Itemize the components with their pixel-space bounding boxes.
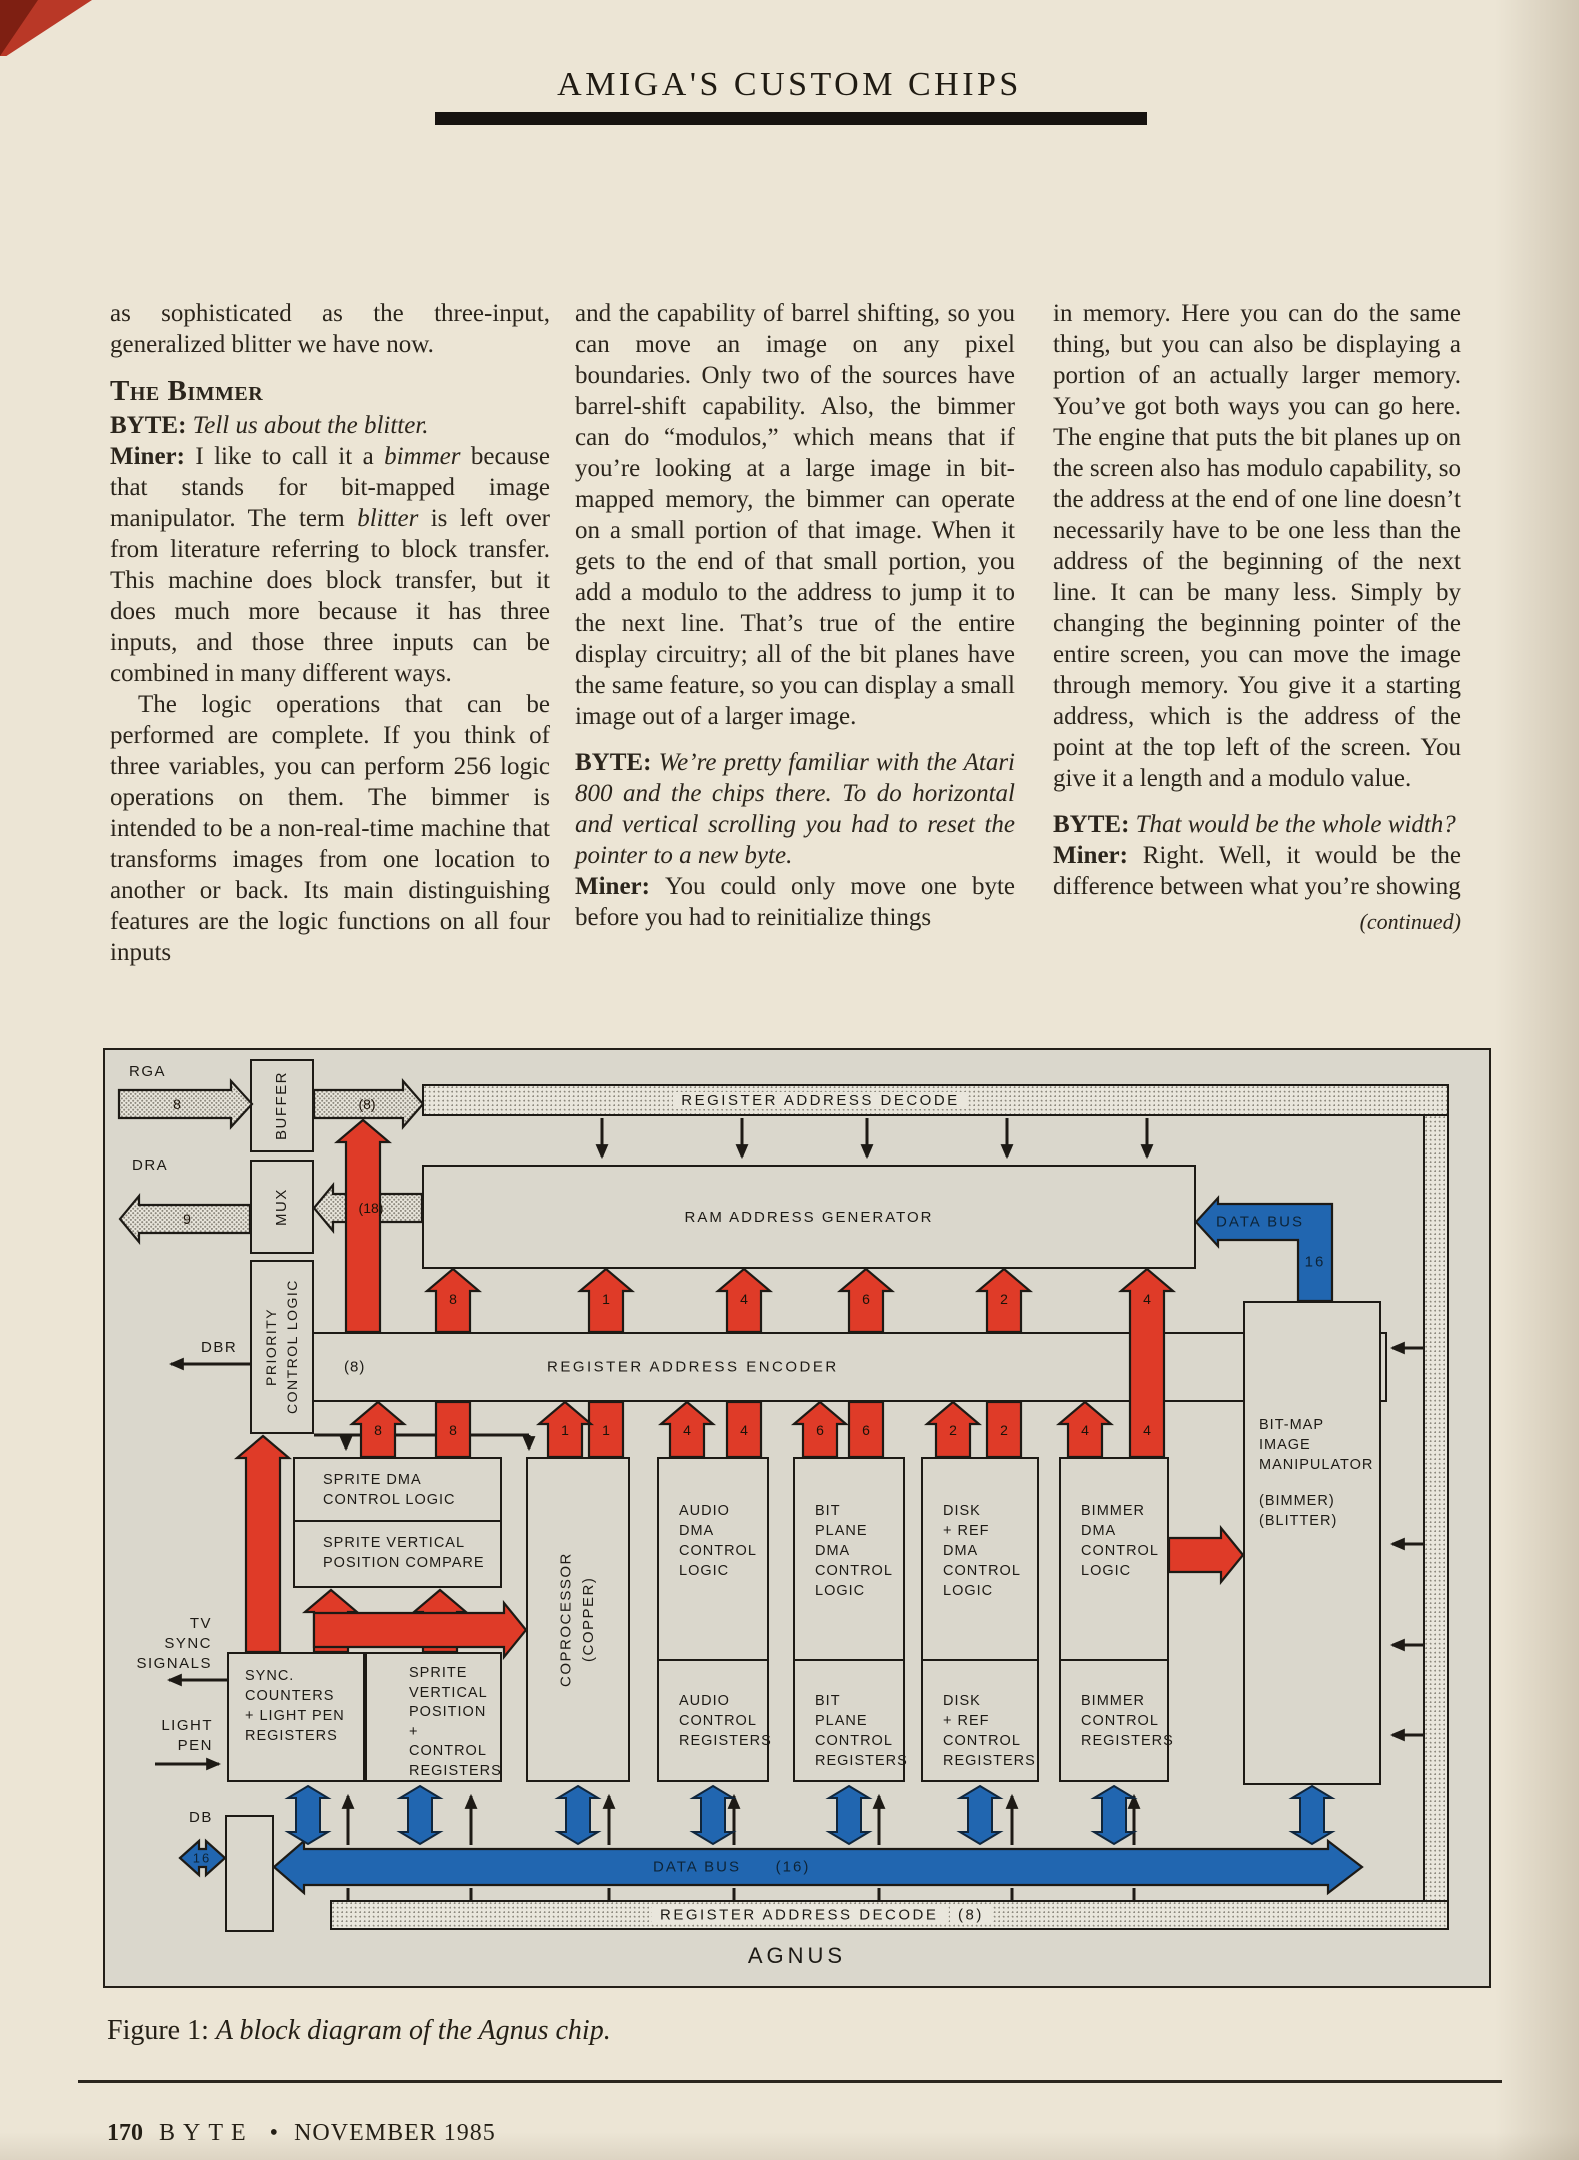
text-run: The Bimmer xyxy=(110,375,263,407)
text-run: Miner: xyxy=(110,443,195,470)
light-pen-label: LIGHT PEN xyxy=(129,1716,213,1756)
bus-width-number: 9 xyxy=(183,1211,191,1227)
bus-width-number: (16) xyxy=(776,1859,811,1876)
channel-width-number: 6 xyxy=(862,1422,870,1438)
channel-width-number: 4 xyxy=(683,1422,691,1438)
box-label: SPRITE VERTICAL POSITION + CONTROL REGIS… xyxy=(367,1654,500,1781)
bitmap-image-manipulator-box: BIT-MAP IMAGE MANIPULATOR (BIMMER) (BLIT… xyxy=(1243,1301,1381,1785)
text-run: as sophisticated as the three-input, gen… xyxy=(110,300,550,358)
bus-width-number: (18) xyxy=(359,1200,384,1216)
box-label: BUFFER xyxy=(252,1061,312,1150)
text-run: bimmer xyxy=(384,443,460,470)
sync-counters-box: SYNC. COUNTERS + LIGHT PEN REGISTERS xyxy=(227,1652,365,1782)
text-run: is left over from literature referring t… xyxy=(110,505,550,687)
text-run: blitter xyxy=(357,505,418,532)
article-paragraph: Miner: Right. Well, it would be the diff… xyxy=(1053,840,1461,902)
chip-name-label: AGNUS xyxy=(105,1943,1489,1969)
article-paragraph: BYTE: Tell us about the blitter. xyxy=(110,410,550,441)
bus-label: REGISTER ADDRESS DECODE xyxy=(673,1092,967,1109)
box-label: MUX xyxy=(252,1162,312,1252)
bit-plane-dma-box: BIT PLANE DMA CONTROL LOGIC BIT PLANE CO… xyxy=(793,1457,905,1782)
box-label: BIT-MAP IMAGE MANIPULATOR xyxy=(1245,1303,1379,1475)
channel-width-number: 6 xyxy=(816,1422,824,1438)
box-label: BIT PLANE CONTROL REGISTERS xyxy=(795,1661,903,1771)
box-label: PRIORITY CONTROL LOGIC xyxy=(252,1262,312,1432)
disk-ref-dma-box: DISK + REF DMA CONTROL LOGIC DISK + REF … xyxy=(921,1457,1039,1782)
text-column-3: in memory. Here you can do the same thin… xyxy=(1053,298,1461,937)
bus-width-number: 16 xyxy=(1305,1254,1326,1271)
buffer-box-bottom xyxy=(225,1815,274,1932)
box-label: BIMMER DMA CONTROL LOGIC xyxy=(1061,1459,1167,1581)
text-column-2: and the capability of barrel shifting, s… xyxy=(575,298,1015,933)
article-paragraph: in memory. Here you can do the same thin… xyxy=(1053,298,1461,794)
box-label: SPRITE DMA CONTROL LOGIC xyxy=(295,1470,456,1510)
register-address-encoder-box: (8) REGISTER ADDRESS ENCODER xyxy=(312,1332,1387,1402)
page-number: 170 xyxy=(107,2120,143,2147)
article-paragraph: as sophisticated as the three-input, gen… xyxy=(110,298,550,360)
channel-width-number: 4 xyxy=(1143,1291,1151,1307)
audio-dma-box: AUDIO DMA CONTROL LOGIC AUDIO CONTROL RE… xyxy=(657,1457,769,1782)
agnus-block-diagram: REGISTER ADDRESS DECODE REGISTER ADDRESS… xyxy=(103,1048,1491,1988)
register-address-decode-bus-top: REGISTER ADDRESS DECODE xyxy=(422,1084,1449,1116)
figure-caption-text: A block diagram of the Agnus chip. xyxy=(216,2015,611,2046)
text-run: The logic operations that can be perform… xyxy=(110,691,550,966)
channel-width-number: 1 xyxy=(561,1422,569,1438)
box-label: SPRITE VERTICAL POSITION COMPARE xyxy=(295,1533,485,1573)
box-label: AUDIO CONTROL REGISTERS xyxy=(659,1661,767,1751)
box-label: COPROCESSOR (COPPER) xyxy=(528,1459,628,1780)
channel-width-number: 2 xyxy=(1000,1291,1008,1307)
box-label xyxy=(227,1817,272,1930)
buffer-box-top: BUFFER xyxy=(250,1059,314,1152)
ram-address-generator-box: RAM ADDRESS GENERATOR xyxy=(422,1165,1196,1269)
article-paragraph: BYTE: We’re pretty familiar with the Ata… xyxy=(575,747,1015,871)
article-paragraph: Miner: I like to call it a bimmer becaus… xyxy=(110,441,550,689)
channel-width-number: 1 xyxy=(602,1291,610,1307)
bus-label: REGISTER ADDRESS DECODE xyxy=(652,1907,946,1924)
article-header-title: AMIGA'S CUSTOM CHIPS xyxy=(0,66,1579,104)
text-run: Miner: xyxy=(575,873,665,900)
bus-width-number: (8) xyxy=(358,1096,375,1112)
footer-rule xyxy=(78,2080,1502,2083)
bus-width-label: (8) xyxy=(950,1907,992,1924)
article-paragraph: BYTE: That would be the whole width? xyxy=(1053,809,1461,840)
issue-date: NOVEMBER 1985 xyxy=(294,2120,496,2147)
text-run: (continued) xyxy=(1360,909,1461,934)
box-label: REGISTER ADDRESS ENCODER xyxy=(547,1359,839,1376)
channel-width-number: 8 xyxy=(374,1422,382,1438)
box-label: BIMMER CONTROL REGISTERS xyxy=(1061,1661,1167,1751)
channel-width-number: 4 xyxy=(740,1291,748,1307)
mux-box: MUX xyxy=(250,1160,314,1254)
dra-signal-label: DRA xyxy=(132,1156,168,1176)
box-label: DISK + REF DMA CONTROL LOGIC xyxy=(923,1459,1037,1601)
magazine-page: AMIGA'S CUSTOM CHIPS as sophisticated as… xyxy=(0,0,1579,2160)
box-label: BIT PLANE DMA CONTROL LOGIC xyxy=(795,1459,903,1601)
rga-signal-label: RGA xyxy=(129,1062,166,1082)
channel-width-number: 6 xyxy=(862,1291,870,1307)
article-paragraph: and the capability of barrel shifting, s… xyxy=(575,298,1015,732)
box-label: DISK + REF CONTROL REGISTERS xyxy=(923,1661,1037,1771)
box-label: SYNC. COUNTERS + LIGHT PEN REGISTERS xyxy=(229,1654,363,1746)
priority-control-logic-box: PRIORITY CONTROL LOGIC xyxy=(250,1260,314,1434)
register-address-decode-bus-bottom: REGISTER ADDRESS DECODE (8) xyxy=(330,1900,1449,1930)
text-run: BYTE: xyxy=(1053,811,1136,838)
text-run: Miner: xyxy=(1053,842,1143,869)
bus-width-label: (8) xyxy=(344,1359,365,1376)
magazine-name: BYTE xyxy=(159,2120,254,2147)
dbr-signal-label: DBR xyxy=(201,1338,237,1358)
channel-width-number: 4 xyxy=(1081,1422,1089,1438)
db-signal-label: DB xyxy=(189,1808,213,1828)
figure-caption-label: Figure 1: xyxy=(107,2015,209,2046)
section-heading: The Bimmer xyxy=(110,375,550,407)
article-paragraph: Miner: You could only move one byte befo… xyxy=(575,871,1015,933)
footer-bullet: • xyxy=(270,2120,278,2147)
sprite-dma-box: SPRITE DMA CONTROL LOGIC SPRITE VERTICAL… xyxy=(293,1457,502,1588)
article-paragraph: The logic operations that can be perform… xyxy=(110,689,550,968)
channel-width-number: 2 xyxy=(1000,1422,1008,1438)
data-bus-label: DATA BUS xyxy=(1216,1214,1304,1231)
text-column-1: as sophisticated as the three-input, gen… xyxy=(110,298,550,968)
text-run: and the capability of barrel shifting, s… xyxy=(575,300,1015,730)
figure-caption: Figure 1: A block diagram of the Agnus c… xyxy=(107,2015,611,2047)
bus-width-number: 8 xyxy=(173,1096,181,1112)
text-run: in memory. Here you can do the same thin… xyxy=(1053,300,1461,792)
channel-width-number: 8 xyxy=(449,1422,457,1438)
text-run: That would be the whole width? xyxy=(1136,811,1456,838)
header-rule xyxy=(435,112,1147,125)
text-run: Tell us about the blitter. xyxy=(193,412,429,439)
article-paragraph: (continued) xyxy=(1053,906,1461,937)
coprocessor-copper-box: COPROCESSOR (COPPER) xyxy=(526,1457,630,1782)
channel-width-number: 4 xyxy=(1143,1422,1151,1438)
tv-sync-signals-label: TV SYNC SIGNALS xyxy=(110,1614,212,1674)
box-label: AUDIO DMA CONTROL LOGIC xyxy=(659,1459,767,1581)
channel-width-number: 1 xyxy=(602,1422,610,1438)
bus-width-number: 16 xyxy=(193,1851,211,1866)
page-footer: 170 BYTE • NOVEMBER 1985 xyxy=(107,2120,496,2147)
box-label: RAM ADDRESS GENERATOR xyxy=(424,1167,1194,1267)
page-edge-shadow xyxy=(1495,0,1579,2160)
channel-width-number: 4 xyxy=(740,1422,748,1438)
channel-width-number: 8 xyxy=(449,1291,457,1307)
bimmer-dma-box: BIMMER DMA CONTROL LOGIC BIMMER CONTROL … xyxy=(1059,1457,1169,1782)
text-run: BYTE: xyxy=(110,412,193,439)
box-label: (BIMMER) (BLITTER) xyxy=(1245,1475,1379,1531)
data-bus-label: DATA BUS xyxy=(653,1859,741,1876)
text-run: BYTE: xyxy=(575,749,659,776)
sprite-vertical-registers-box: SPRITE VERTICAL POSITION + CONTROL REGIS… xyxy=(365,1652,502,1782)
register-address-decode-bus-right xyxy=(1423,1114,1449,1902)
channel-width-number: 2 xyxy=(949,1422,957,1438)
text-run: I like to call it a xyxy=(195,443,384,470)
